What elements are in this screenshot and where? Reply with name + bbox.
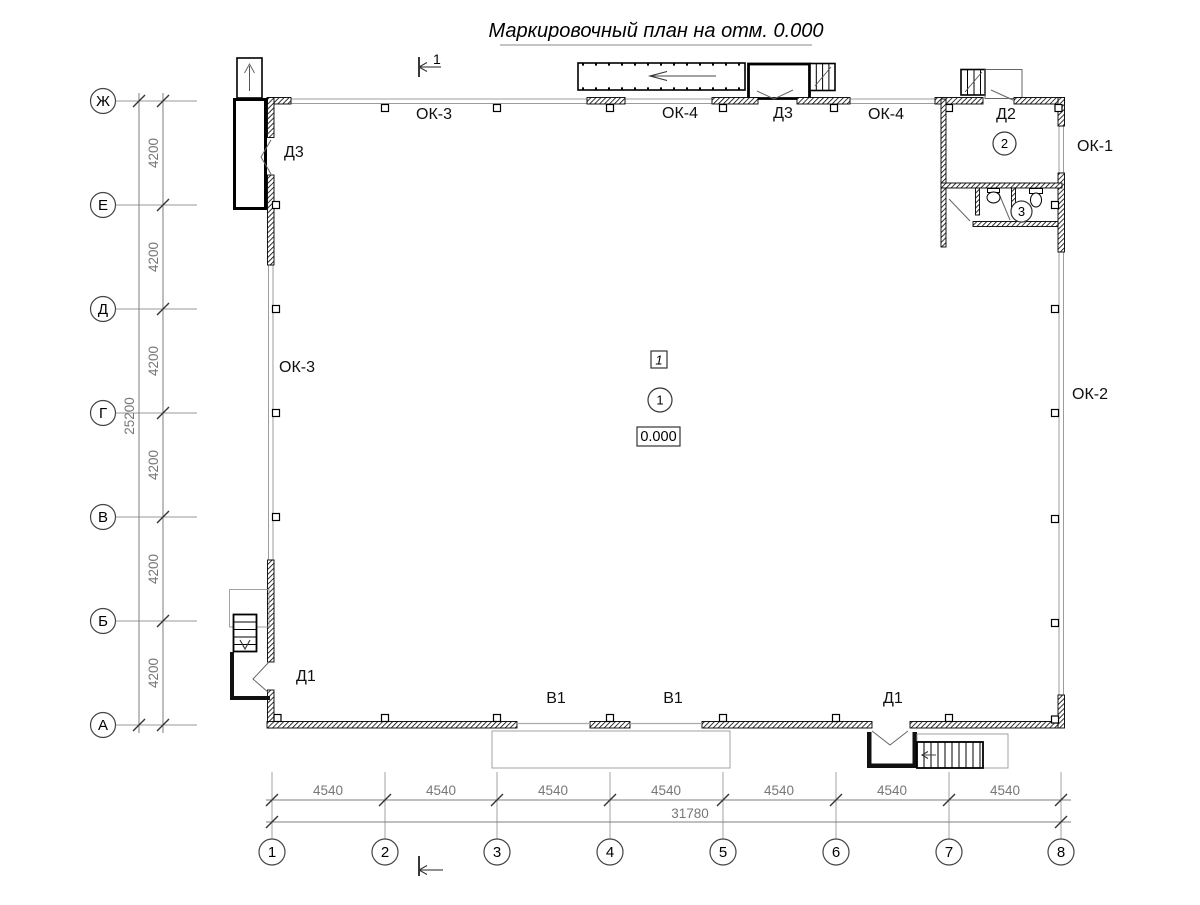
door-leaf-d1-right	[872, 731, 908, 745]
axis-col-4: 4	[606, 844, 614, 861]
room-number-3: 3	[1018, 204, 1025, 219]
label-d1-right: Д1	[883, 690, 903, 707]
col-axis-bubbles: 1 2 3 4 5 6 7 8	[259, 839, 1074, 865]
dim-bay-h-2: 4200	[146, 242, 161, 272]
toilet-fixture	[1030, 189, 1043, 208]
dim-bay-h-3: 4200	[146, 346, 161, 376]
vestibule-d3	[749, 64, 836, 100]
drawing-sheet: Маркировочный план на отм. 0.000 4200 42…	[0, 0, 1200, 900]
axis-row-g: Г	[99, 405, 107, 422]
window-band-ok2	[1059, 252, 1064, 695]
loading-ramp	[578, 63, 745, 90]
window-band-ok4-right	[850, 99, 937, 104]
entry-stair-d3	[810, 64, 835, 91]
axis-row-a: А	[98, 717, 108, 734]
bottom-dimension-chain: 4540 4540 4540 4540 4540 4540 4540 31780	[266, 772, 1071, 839]
axis-row-d: Д	[98, 301, 108, 318]
hall-elevation: 0.000	[640, 429, 676, 445]
section-number: 1	[433, 51, 441, 67]
axis-col-3: 3	[493, 844, 501, 861]
axis-col-7: 7	[945, 844, 953, 861]
room-bubble-washroom: 3	[1011, 201, 1032, 222]
porch-southwest	[230, 590, 271, 701]
label-ok3-left: ОК-3	[279, 359, 315, 376]
label-ok2: ОК-2	[1072, 386, 1108, 403]
axis-row-v: В	[98, 509, 108, 526]
gate-apron	[492, 731, 730, 768]
axis-col-1: 1	[268, 844, 276, 861]
section-mark-bottom	[419, 856, 443, 876]
left-dimension-chain: 4200 4200 4200 4200 4200 4200 25200	[116, 93, 197, 733]
drawing-title: Маркировочный план на отм. 0.000	[488, 20, 823, 42]
hall-type-marker: 1	[655, 353, 662, 368]
entry-stair-d2	[961, 70, 1022, 99]
roof-vent-shaft	[237, 58, 262, 98]
label-ok1: ОК-1	[1077, 138, 1113, 155]
row-axis-bubbles: Ж Е Д Г В Б А	[91, 89, 116, 738]
dim-bay-h-6: 4200	[146, 658, 161, 688]
porch-northwest	[235, 100, 272, 209]
axis-col-6: 6	[832, 844, 840, 861]
room-bubble-vestibule: 2	[993, 132, 1016, 155]
dim-bay-w-4: 4540	[651, 783, 681, 798]
axis-row-zh: Ж	[96, 93, 110, 110]
dim-bay-h-4: 4200	[146, 450, 161, 480]
axis-col-2: 2	[381, 844, 389, 861]
floor-plan-svg: Маркировочный план на отм. 0.000 4200 42…	[0, 0, 1200, 900]
window-band-ok1	[1059, 126, 1064, 173]
sink-fixture	[987, 189, 1000, 204]
dim-bay-h-5: 4200	[146, 554, 161, 584]
entry-platform-d2	[985, 70, 1022, 99]
door-leaf-d1-left	[253, 662, 269, 693]
label-ok4-left: ОК-4	[662, 105, 698, 122]
axis-col-8: 8	[1057, 844, 1065, 861]
label-d2: Д2	[996, 106, 1016, 123]
hall-room-number: 1	[656, 393, 663, 408]
axis-col-5: 5	[719, 844, 727, 861]
label-d3-top: Д3	[773, 105, 793, 122]
dim-bay-w-3: 4540	[538, 783, 568, 798]
window-band-ok4-left	[625, 99, 712, 104]
label-ok4-right: ОК-4	[868, 106, 904, 123]
section-mark-top: 1	[419, 51, 441, 77]
hall-markers: 1 1 0.000	[637, 351, 680, 446]
label-v1-left: В1	[546, 690, 566, 707]
dim-bay-h-1: 4200	[146, 138, 161, 168]
dim-bay-w-7: 4540	[990, 783, 1020, 798]
dim-bay-w-6: 4540	[877, 783, 907, 798]
dim-bay-w-2: 4540	[426, 783, 456, 798]
dim-total-w: 31780	[671, 806, 709, 821]
label-d1-left: Д1	[296, 668, 316, 685]
dim-bay-w-5: 4540	[764, 783, 794, 798]
axis-row-e: Е	[98, 197, 108, 214]
room-number-2: 2	[1001, 136, 1008, 151]
label-d3-left: Д3	[284, 144, 304, 161]
dim-total-h: 25200	[122, 397, 137, 435]
label-ok3-top: ОК-3	[416, 106, 452, 123]
dim-bay-w-1: 4540	[313, 783, 343, 798]
washroom	[949, 188, 1058, 227]
porch-southeast	[867, 731, 1008, 768]
axis-row-b: Б	[98, 613, 108, 630]
window-band-ok3-top	[291, 99, 587, 104]
label-v1-right: В1	[663, 690, 683, 707]
